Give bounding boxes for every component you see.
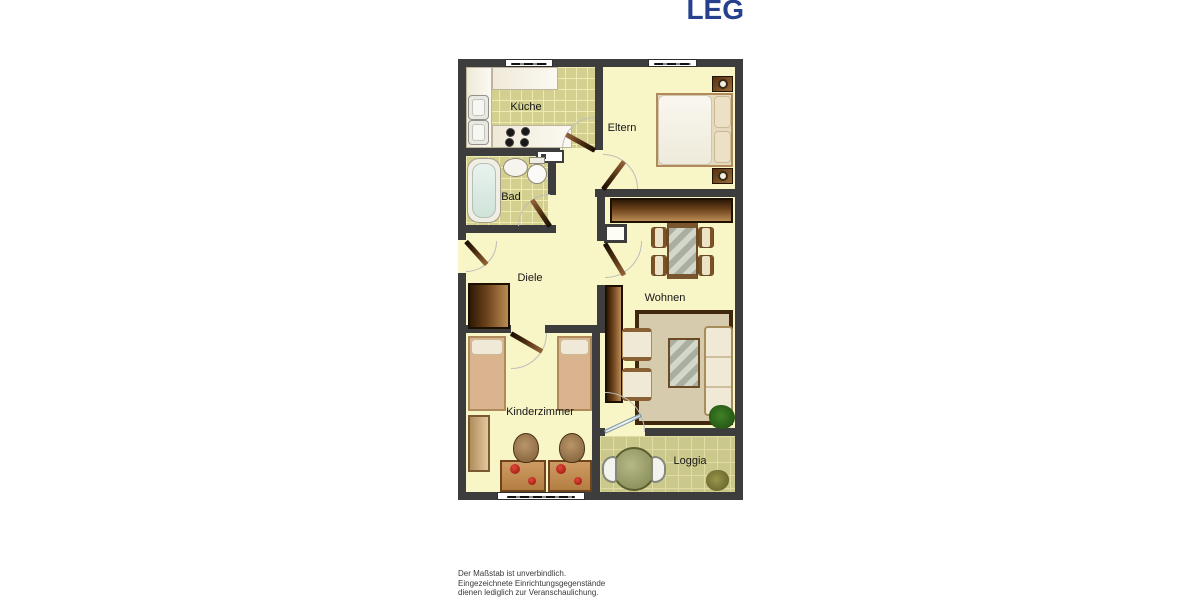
- room-label-eltern: Eltern: [608, 122, 637, 134]
- desk-item: [556, 464, 566, 474]
- room-label-diele: Diele: [517, 272, 542, 284]
- dining-chair: [698, 227, 714, 248]
- room-label-loggia: Loggia: [673, 455, 706, 467]
- dining-chair: [651, 255, 667, 276]
- disclaimer-line-3: dienen lediglich zur Veranschaulichung.: [458, 588, 688, 598]
- coffee-table: [668, 338, 700, 388]
- desk-item: [528, 477, 536, 485]
- sofa: [704, 326, 733, 416]
- wall-bath-bottom: [466, 225, 556, 233]
- stove-burner: [505, 138, 514, 147]
- kitchen-stove-counter: [492, 125, 572, 148]
- toilet-tank: [529, 157, 545, 164]
- wall-wohnen-loggia: [645, 428, 735, 436]
- wall-kinder-wohnen: [592, 325, 600, 492]
- floorplan-page: LEG: [0, 0, 1200, 600]
- wohnen-wardrobe: [610, 198, 733, 223]
- dining-chair: [651, 227, 667, 248]
- nightstand-lamp: [718, 171, 728, 181]
- loggia-chair: [602, 456, 617, 483]
- eltern-bed-duvet: [658, 95, 712, 165]
- disclaimer-line-2: Eingezeichnete Einrichtungsgegenstände: [458, 579, 688, 589]
- room-label-bad: Bad: [501, 191, 521, 203]
- wall-left-upper: [458, 59, 466, 240]
- kinder-wardrobe: [468, 415, 490, 472]
- stove-burner: [506, 128, 515, 137]
- wohnen-cabinet: [605, 285, 623, 403]
- kinder-desk: [548, 460, 592, 492]
- leg-logo: LEG: [682, 0, 744, 24]
- kinder-bed-pillow: [471, 339, 503, 355]
- toilet-bowl: [527, 164, 547, 184]
- wall-eltern-wohnen: [595, 189, 743, 197]
- wall-left-lower: [458, 273, 466, 500]
- bathtub: [467, 158, 501, 223]
- wall-niche: [604, 224, 627, 243]
- kinder-desk: [500, 460, 546, 492]
- room-label-kueche: Küche: [510, 101, 541, 113]
- wall-top: [458, 59, 743, 67]
- nightstand-lamp: [718, 79, 728, 89]
- room-label-kinderzimmer: Kinderzimmer: [506, 406, 574, 418]
- wall-kitchen-eltern: [595, 67, 603, 150]
- floorplan: Küche Eltern Bad Diele Wohnen Kinderzimm…: [458, 59, 743, 500]
- stove-burner: [520, 138, 529, 147]
- dining-chair: [698, 255, 714, 276]
- kitchen-sink-1: [468, 95, 489, 120]
- washbasin: [503, 158, 528, 177]
- disclaimer-line-1: Der Maßstab ist unverbindlich.: [458, 569, 688, 579]
- kitchen-counter-top: [492, 67, 558, 90]
- stove-burner: [521, 127, 530, 136]
- eltern-bed-pillows: [714, 96, 731, 128]
- wall-right: [735, 59, 743, 500]
- room-label-wohnen: Wohnen: [645, 292, 686, 304]
- armchair: [622, 368, 652, 401]
- kinder-bed-pillow: [560, 339, 589, 355]
- desk-chair: [513, 433, 539, 463]
- loggia-table: [612, 447, 656, 491]
- desk-item: [510, 464, 520, 474]
- plant: [709, 405, 735, 429]
- eltern-bed-pillows: [714, 131, 731, 163]
- eltern-window: [648, 59, 697, 67]
- hall-wardrobe: [468, 283, 510, 329]
- dining-table: [667, 223, 698, 279]
- kinder-window: [497, 492, 585, 500]
- desk-item: [574, 477, 582, 485]
- desk-chair: [559, 433, 585, 463]
- armchair: [622, 328, 652, 361]
- disclaimer-text: Der Maßstab ist unverbindlich. Eingezeic…: [458, 569, 688, 598]
- kitchen-sink-2: [468, 120, 489, 145]
- kitchen-window: [505, 59, 553, 67]
